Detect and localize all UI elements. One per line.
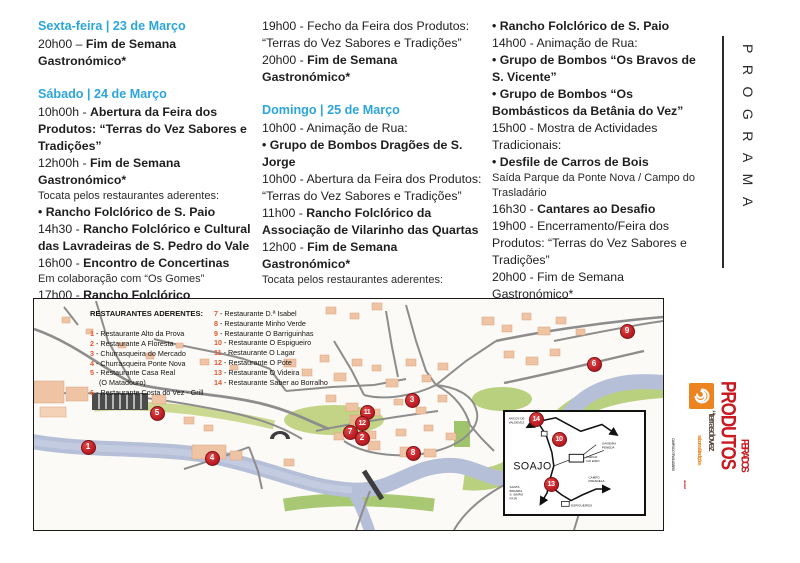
program-line: 10h00 - Animação de Rua: xyxy=(262,120,486,137)
program-segment: 10h00 - Animação de Rua: xyxy=(262,121,408,135)
program-segment: 19h00 - Fecho da Feira dos Produtos: “Te… xyxy=(262,19,469,50)
program-segment: • Desfile de Carros de Bois xyxy=(492,155,649,169)
map-marker-number: 11 xyxy=(364,408,371,415)
program-line: • Grupo de Bombos “Os Bravos de S. Vicen… xyxy=(492,52,700,86)
program-line: 12h00 - Fim de Semana Gastronómico* xyxy=(262,239,486,273)
logo-feira-dos-text: FEIRA DOS xyxy=(738,439,751,471)
map-marker-10: 10 xyxy=(552,432,567,447)
programa-divider-line xyxy=(722,36,724,268)
program-line: • Rancho Folclórico de S. Paio xyxy=(38,204,256,221)
program-column-saturday-sunday: 19h00 - Fecho da Feira dos Produtos: “Te… xyxy=(262,18,486,288)
program-column-friday-saturday: Sexta-feira | 23 de Março20h00 – Fim de … xyxy=(38,18,256,304)
map-marker-number: 7 xyxy=(348,428,353,436)
program-segment: Encontro de Concertinas xyxy=(83,256,229,270)
flyer-page: Sexta-feira | 23 de Março20h00 – Fim de … xyxy=(0,0,800,563)
programa-vertical-title: PROGRAMA xyxy=(740,44,756,218)
program-line: 19h00 - Encerramento/Feira dos Produtos:… xyxy=(492,218,700,269)
program-segment: 20h00 - Fim de Semana Gastronómico* xyxy=(492,270,624,301)
program-line: 10h00 - Abertura da Feira dos Produtos: … xyxy=(262,171,486,205)
logo-campo-text: CAMPO DO TRASLADÁRIO xyxy=(671,438,675,471)
program-segment: • Grupo de Bombos “Os Bombásticos da Bet… xyxy=(492,87,683,118)
map-marker-2: 2 xyxy=(355,431,370,446)
day-heading: Domingo | 25 de Março xyxy=(262,102,486,119)
map-marker-number: 4 xyxy=(210,454,215,462)
map-marker-number: 5 xyxy=(155,409,160,417)
program-segment: 16h00 - xyxy=(38,256,83,270)
map-marker-5: 5 xyxy=(150,406,165,421)
program-segment: 14h00 - Animação de Rua: xyxy=(492,36,638,50)
program-note: Tocata pelos restaurantes aderentes: xyxy=(38,189,256,204)
program-line: 16h00 - Encontro de Concertinas xyxy=(38,255,256,272)
map-marker-6: 6 xyxy=(587,357,602,372)
map-marker-number: 13 xyxy=(548,480,555,487)
program-line: • Desfile de Carros de Bois xyxy=(492,154,700,171)
map-marker-number: 3 xyxy=(410,396,415,404)
feira-dos-produtos-logo: CAMPO DO TRASLADÁRIO slow food sabores&t… xyxy=(664,376,766,518)
program-segment: 11h00 - xyxy=(262,206,306,220)
day-heading: Sexta-feira | 23 de Março xyxy=(38,18,256,35)
map-marker-9: 9 xyxy=(620,324,635,339)
program-segment: 15h00 - Mostra de Actividades Tradiciona… xyxy=(492,121,657,152)
program-line: 19h00 - Fecho da Feira dos Produtos: “Te… xyxy=(262,18,486,52)
program-line: 12h00h - Fim de Semana Gastronómico* xyxy=(38,155,256,189)
program-segment: Cantares ao Desafio xyxy=(537,202,655,216)
map-marker-8: 8 xyxy=(406,446,421,461)
program-note: Em colaboração com “Os Gomes” xyxy=(38,272,256,287)
program-line: 15h00 - Mostra de Actividades Tradiciona… xyxy=(492,120,700,154)
program-segment: 16h30 - xyxy=(492,202,537,216)
program-segment: 10h00h - xyxy=(38,105,90,119)
program-segment: • Rancho Folclórico de S. Paio xyxy=(38,205,215,219)
program-line: 14h30 - Rancho Folclórico e Cultural das… xyxy=(38,221,256,255)
program-line: 20h00 - Fim de Semana Gastronómico* xyxy=(262,52,486,86)
program-segment: 12h00 - xyxy=(262,240,307,254)
swirl-logo-icon xyxy=(689,383,714,409)
program-spacer xyxy=(38,70,256,86)
swirl-icon xyxy=(692,386,712,406)
program-segment: 14h30 - xyxy=(38,222,83,236)
map-marker-number: 8 xyxy=(411,449,416,457)
program-segment: 12h00h - xyxy=(38,156,90,170)
program-column-sunday: • Rancho Folclórico de S. Paio14h00 - An… xyxy=(492,18,700,318)
program-line: 14h00 - Animação de Rua: xyxy=(492,35,700,52)
town-map: RESTAURANTES ADERENTES: 1 - Restaurante … xyxy=(33,298,664,531)
program-line: 10h00h - Abertura da Feira dos Produtos:… xyxy=(38,104,256,155)
program-segment: • Grupo de Bombos “Os Bravos de S. Vicen… xyxy=(492,53,696,84)
day-heading: Sábado | 24 de Março xyxy=(38,86,256,103)
map-marker-13: 13 xyxy=(544,477,559,492)
program-line: 20h00 – Fim de Semana Gastronómico* xyxy=(38,36,256,70)
logo-slow-text: slow food xyxy=(683,480,687,489)
program-line: • Rancho Folclórico de S. Paio xyxy=(492,18,700,35)
logo-produtos-text: PRODUTOS xyxy=(715,381,740,469)
map-marker-number: 1 xyxy=(86,443,91,451)
logo-sabores-text: sabores&tradições xyxy=(696,435,702,465)
program-segment: 19h00 - Encerramento/Feira dos Produtos:… xyxy=(492,219,687,267)
map-marker-4: 4 xyxy=(205,451,220,466)
program-spacer xyxy=(262,86,486,102)
map-marker-14: 14 xyxy=(529,412,544,427)
program-line: • Grupo de Bombos Dragões de S. Jorge xyxy=(262,137,486,171)
map-marker-number: 6 xyxy=(592,360,597,368)
map-marker-number: 14 xyxy=(533,415,540,422)
map-markers-layer: 1541112723869141013 xyxy=(34,299,663,530)
program-segment: 20h00 – xyxy=(38,37,86,51)
program-segment: • Rancho Folclórico de S. Paio xyxy=(492,19,669,33)
map-marker-1: 1 xyxy=(81,440,96,455)
program-segment: • Grupo de Bombos Dragões de S. Jorge xyxy=(262,138,462,169)
map-marker-3: 3 xyxy=(405,393,420,408)
map-marker-number: 12 xyxy=(359,419,366,426)
map-marker-number: 10 xyxy=(556,435,563,442)
program-note: Tocata pelos restaurantes aderentes: xyxy=(262,273,486,288)
program-line: 16h30 - Cantares ao Desafio xyxy=(492,201,700,218)
program-note: Saída Parque da Ponte Nova / Campo do Tr… xyxy=(492,171,700,201)
program-line: • Grupo de Bombos “Os Bombásticos da Bet… xyxy=(492,86,700,120)
map-marker-number: 9 xyxy=(625,327,630,335)
program-segment: 10h00 - Abertura da Feira dos Produtos: … xyxy=(262,172,481,203)
map-marker-number: 2 xyxy=(360,434,365,442)
program-line: 11h00 - Rancho Folclórico da Associação … xyxy=(262,205,486,239)
program-segment: 20h00 - xyxy=(262,53,307,67)
